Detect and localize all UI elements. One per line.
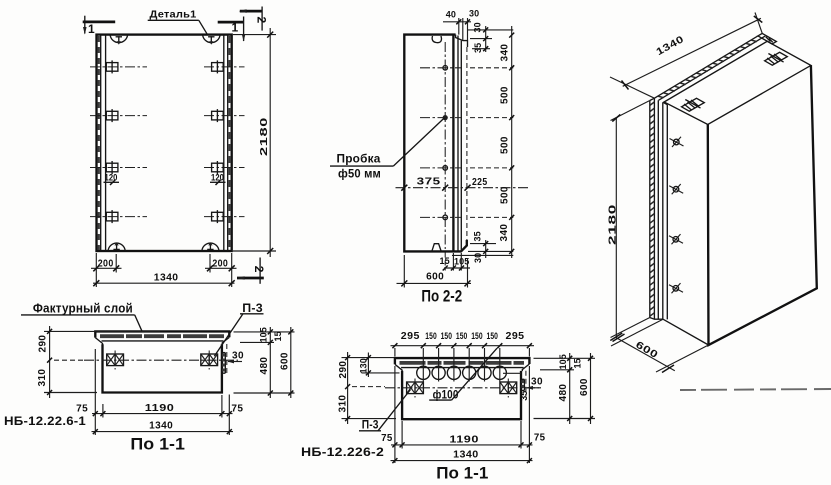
svg-text:600: 600 — [426, 271, 444, 282]
svg-text:2: 2 — [255, 17, 269, 24]
svg-text:500: 500 — [500, 136, 511, 154]
svg-text:150: 150 — [487, 331, 499, 341]
svg-text:375: 375 — [417, 177, 441, 188]
svg-text:105: 105 — [558, 354, 568, 369]
svg-text:310: 310 — [337, 395, 348, 413]
svg-text:30: 30 — [473, 22, 483, 32]
svg-text:1: 1 — [232, 21, 239, 35]
svg-text:600: 600 — [280, 352, 291, 370]
svg-text:120: 120 — [211, 173, 224, 183]
svg-text:ф50 мм: ф50 мм — [338, 167, 381, 181]
svg-text:П-3: П-3 — [242, 301, 263, 315]
svg-text:500: 500 — [500, 86, 511, 104]
svg-text:1190: 1190 — [449, 435, 479, 446]
svg-text:2180: 2180 — [259, 117, 270, 156]
svg-text:НБ-12.22.6-1: НБ-12.22.6-1 — [4, 414, 86, 428]
svg-text:1340: 1340 — [149, 421, 173, 432]
svg-text:500: 500 — [500, 186, 511, 204]
svg-text:225: 225 — [472, 177, 488, 188]
svg-text:1340: 1340 — [154, 273, 179, 284]
svg-text:1340: 1340 — [655, 34, 687, 58]
svg-text:290: 290 — [38, 335, 49, 353]
svg-text:ф100: ф100 — [433, 387, 459, 401]
svg-text:120: 120 — [105, 173, 118, 183]
svg-text:295: 295 — [401, 331, 420, 342]
svg-text:15: 15 — [440, 256, 450, 266]
svg-text:По 2-2: По 2-2 — [421, 287, 462, 306]
svg-text:Пробка: Пробка — [337, 152, 381, 166]
svg-text:1340: 1340 — [453, 450, 479, 461]
svg-text:105: 105 — [259, 327, 269, 342]
svg-text:150: 150 — [471, 331, 483, 341]
svg-text:2: 2 — [252, 266, 266, 273]
svg-text:150: 150 — [425, 331, 437, 341]
svg-text:1: 1 — [88, 22, 95, 36]
svg-text:По 1-1: По 1-1 — [130, 434, 185, 453]
svg-text:Фактурный слой: Фактурный слой — [33, 301, 133, 315]
svg-text:480: 480 — [558, 384, 569, 402]
svg-text:200: 200 — [212, 258, 228, 269]
svg-text:35: 35 — [473, 43, 483, 53]
svg-text:150: 150 — [456, 331, 468, 341]
svg-text:35: 35 — [519, 391, 529, 401]
svg-text:1190: 1190 — [145, 403, 175, 414]
svg-text:75: 75 — [534, 432, 546, 443]
svg-text:290: 290 — [338, 361, 349, 379]
svg-text:340: 340 — [499, 224, 510, 242]
svg-text:150: 150 — [441, 331, 453, 341]
svg-text:Деталь1: Деталь1 — [150, 8, 197, 20]
svg-text:480: 480 — [259, 357, 270, 375]
svg-text:П-3: П-3 — [362, 417, 379, 431]
svg-text:40: 40 — [446, 9, 456, 19]
svg-text:200: 200 — [98, 258, 114, 269]
svg-text:35: 35 — [472, 231, 482, 241]
svg-text:30: 30 — [469, 9, 479, 19]
svg-text:130: 130 — [359, 358, 369, 373]
svg-text:75: 75 — [381, 433, 393, 444]
svg-text:2180: 2180 — [608, 204, 619, 245]
svg-text:295: 295 — [506, 331, 525, 342]
svg-text:30: 30 — [473, 253, 483, 263]
svg-text:15: 15 — [573, 358, 583, 368]
svg-text:По 1-1: По 1-1 — [436, 463, 488, 482]
svg-text:340: 340 — [500, 44, 511, 62]
svg-text:75: 75 — [231, 404, 243, 415]
svg-text:600: 600 — [634, 340, 660, 362]
svg-text:600: 600 — [579, 378, 590, 396]
svg-text:15: 15 — [273, 331, 283, 341]
svg-text:НБ-12.226-2: НБ-12.226-2 — [301, 445, 384, 459]
svg-text:310: 310 — [37, 369, 48, 387]
